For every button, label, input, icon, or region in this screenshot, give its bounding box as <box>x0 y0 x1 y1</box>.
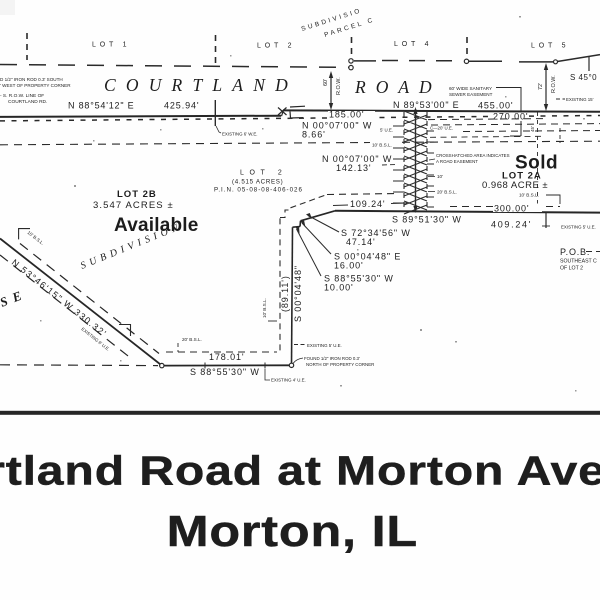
svg-text:10' B.S.L.: 10' B.S.L. <box>262 298 267 318</box>
svg-text:' WEST OF PROPERTY CORNER: ' WEST OF PROPERTY CORNER <box>0 83 71 88</box>
svg-text:D 1/2" IRON ROD 0.3' SOUTH: D 1/2" IRON ROD 0.3' SOUTH <box>0 77 63 82</box>
svg-text:455.00': 455.00' <box>478 101 514 111</box>
svg-text:10.00': 10.00' <box>324 283 354 293</box>
svg-text:60': 60' <box>323 79 329 86</box>
svg-text:300.00': 300.00' <box>494 204 530 214</box>
svg-text:Courtland Road at Morton Avenu: Courtland Road at Morton Avenue <box>0 448 600 494</box>
svg-text:LOT 1: LOT 1 <box>92 42 130 49</box>
svg-text:LOT 4: LOT 4 <box>394 41 432 48</box>
svg-text:S 89°51'30" W: S 89°51'30" W <box>392 215 462 225</box>
svg-text:FOUND 1/2" IRON ROD 0.3': FOUND 1/2" IRON ROD 0.3' <box>304 356 360 361</box>
svg-text:185.00': 185.00' <box>329 110 365 120</box>
svg-text:EXISTING 5' U.E.: EXISTING 5' U.E. <box>561 225 596 230</box>
svg-text:COURTLAND: COURTLAND <box>104 75 298 95</box>
svg-text:- S. R.O.W. LINE OF: - S. R.O.W. LINE OF <box>0 93 44 99</box>
svg-text:S 88°55'30" W: S 88°55'30" W <box>190 367 260 377</box>
svg-text:LOT 5: LOT 5 <box>531 43 569 50</box>
svg-text:409.24': 409.24' <box>491 220 532 230</box>
svg-text:EXISTING 6' W.E.: EXISTING 6' W.E. <box>222 132 257 137</box>
svg-text:N 88°54'12" E: N 88°54'12" E <box>68 101 134 111</box>
svg-text:A ROAD EASEMENT: A ROAD EASEMENT <box>436 159 478 164</box>
svg-text:P.O.B.: P.O.B. <box>560 247 590 257</box>
svg-text:10' B.S.L.: 10' B.S.L. <box>519 193 539 198</box>
svg-text:ROAD: ROAD <box>354 77 442 97</box>
svg-text:EXISTING 15': EXISTING 15' <box>566 97 594 102</box>
svg-text:109.24': 109.24' <box>350 199 386 209</box>
svg-text:SEWER EASEMENT: SEWER EASEMENT <box>449 92 493 97</box>
svg-text:142.13': 142.13' <box>336 163 372 173</box>
svg-text:R.O.W.: R.O.W. <box>551 75 557 93</box>
svg-text:270.00': 270.00' <box>493 112 529 122</box>
svg-text:NORTH OF PROPERTY CORNER: NORTH OF PROPERTY CORNER <box>306 362 374 367</box>
svg-text:COURTLAND RD.: COURTLAND RD. <box>8 99 47 105</box>
svg-text:S 45°0: S 45°0 <box>570 73 597 82</box>
svg-text:SOUTHEAST C: SOUTHEAST C <box>560 259 597 265</box>
svg-text:EXISTING 4' U.E.: EXISTING 4' U.E. <box>271 378 306 383</box>
svg-text:72': 72' <box>538 83 544 90</box>
svg-text:47.14': 47.14' <box>346 237 376 247</box>
svg-text:10' B.S.L.: 10' B.S.L. <box>372 143 392 148</box>
svg-text:16.00': 16.00' <box>334 261 364 271</box>
svg-text:5' U.E.: 5' U.E. <box>380 128 393 133</box>
svg-text:3.547 ACRES ±: 3.547 ACRES ± <box>93 200 174 211</box>
svg-text:20' B.S.L.: 20' B.S.L. <box>182 337 202 342</box>
svg-text:EXISTING 5' U.E.: EXISTING 5' U.E. <box>307 343 342 348</box>
svg-text:(4.515 ACRES): (4.515 ACRES) <box>232 179 283 186</box>
svg-text:S 00°04'48": S 00°04'48" <box>293 265 303 322</box>
svg-text:(89.11'): (89.11') <box>280 275 290 312</box>
svg-text:R.O.W.: R.O.W. <box>336 77 342 95</box>
svg-text:0.968 ACRE ±: 0.968 ACRE ± <box>482 180 548 191</box>
svg-text:Morton, IL: Morton, IL <box>167 507 418 556</box>
svg-text:60' WIDE SANITARY: 60' WIDE SANITARY <box>449 86 492 91</box>
svg-text:N 89°53'00" E: N 89°53'00" E <box>393 100 459 110</box>
svg-text:CROSSHATCHED AREA INDICATES: CROSSHATCHED AREA INDICATES <box>436 153 510 158</box>
svg-text:LOT 2: LOT 2 <box>240 170 287 177</box>
svg-text:P.I.N. 05-08-08-406-026: P.I.N. 05-08-08-406-026 <box>214 187 303 194</box>
svg-text:10': 10' <box>437 174 443 179</box>
svg-text:LOT 2: LOT 2 <box>257 43 295 50</box>
svg-text:C—20' U.E.: C—20' U.E. <box>430 126 453 131</box>
svg-text:178.01': 178.01' <box>209 352 245 362</box>
svg-text:20' B.S.L.: 20' B.S.L. <box>437 190 457 195</box>
svg-text:OF LOT 2: OF LOT 2 <box>560 266 583 272</box>
svg-text:8.66': 8.66' <box>302 130 326 140</box>
svg-text:LOT 2B: LOT 2B <box>117 189 157 200</box>
svg-text:425.94': 425.94' <box>164 101 200 111</box>
svg-text:45': 45' <box>530 126 535 132</box>
